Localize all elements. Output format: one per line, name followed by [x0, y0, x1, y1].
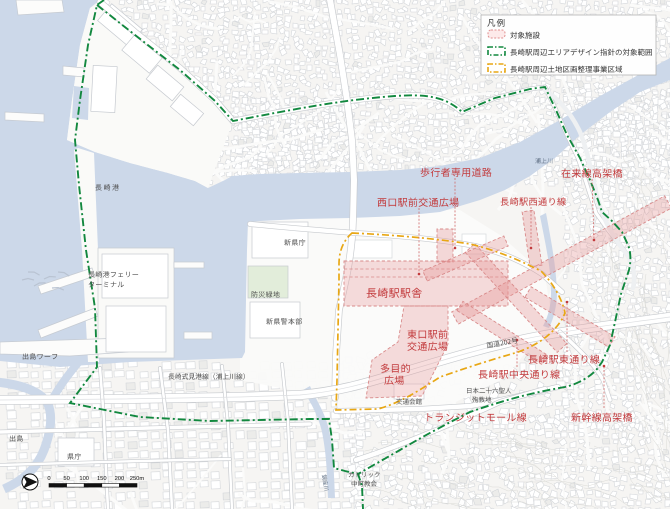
svg-text:0: 0	[47, 476, 50, 482]
svg-text:200: 200	[115, 476, 125, 482]
svg-text:50: 50	[63, 476, 69, 482]
svg-text:250m: 250m	[130, 476, 145, 482]
svg-text:150: 150	[97, 476, 107, 482]
svg-text:100: 100	[79, 476, 89, 482]
